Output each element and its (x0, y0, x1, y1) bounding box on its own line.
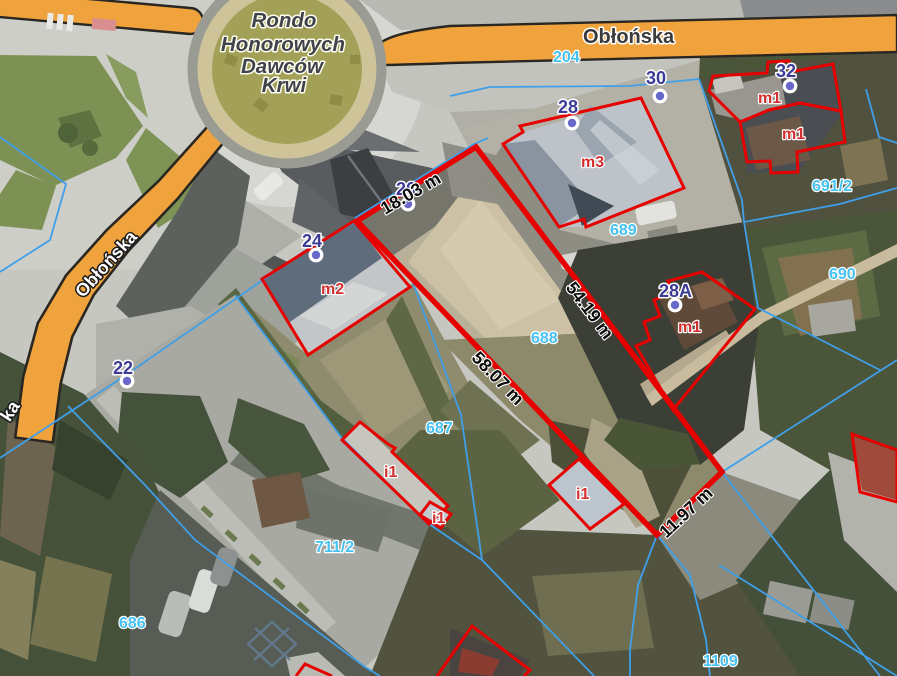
svg-text:1109: 1109 (703, 653, 738, 670)
svg-text:204: 204 (553, 49, 580, 66)
svg-text:Rondo: Rondo (252, 9, 317, 32)
svg-text:688: 688 (531, 330, 558, 347)
svg-text:i1: i1 (432, 510, 445, 527)
svg-text:Krwi: Krwi (262, 74, 308, 97)
svg-text:m1: m1 (678, 319, 701, 336)
svg-text:690: 690 (829, 266, 856, 283)
svg-text:691/2: 691/2 (812, 178, 852, 195)
svg-text:32: 32 (776, 61, 796, 81)
svg-text:22: 22 (113, 358, 133, 378)
svg-text:m3: m3 (581, 154, 604, 171)
svg-text:i1: i1 (576, 486, 589, 503)
svg-text:m1: m1 (758, 90, 781, 107)
svg-text:711/2: 711/2 (315, 539, 354, 556)
svg-text:m1: m1 (782, 126, 805, 143)
svg-text:686: 686 (119, 615, 146, 632)
svg-text:30: 30 (646, 68, 666, 88)
svg-text:687: 687 (426, 420, 453, 437)
svg-text:689: 689 (610, 222, 637, 239)
svg-text:m2: m2 (321, 281, 344, 298)
svg-text:28: 28 (558, 97, 578, 117)
svg-text:Obłońska: Obłońska (583, 26, 675, 48)
svg-text:i1: i1 (384, 464, 397, 481)
svg-text:Honorowych: Honorowych (221, 33, 345, 56)
svg-text:28A: 28A (659, 281, 692, 301)
svg-text:24: 24 (302, 231, 322, 251)
